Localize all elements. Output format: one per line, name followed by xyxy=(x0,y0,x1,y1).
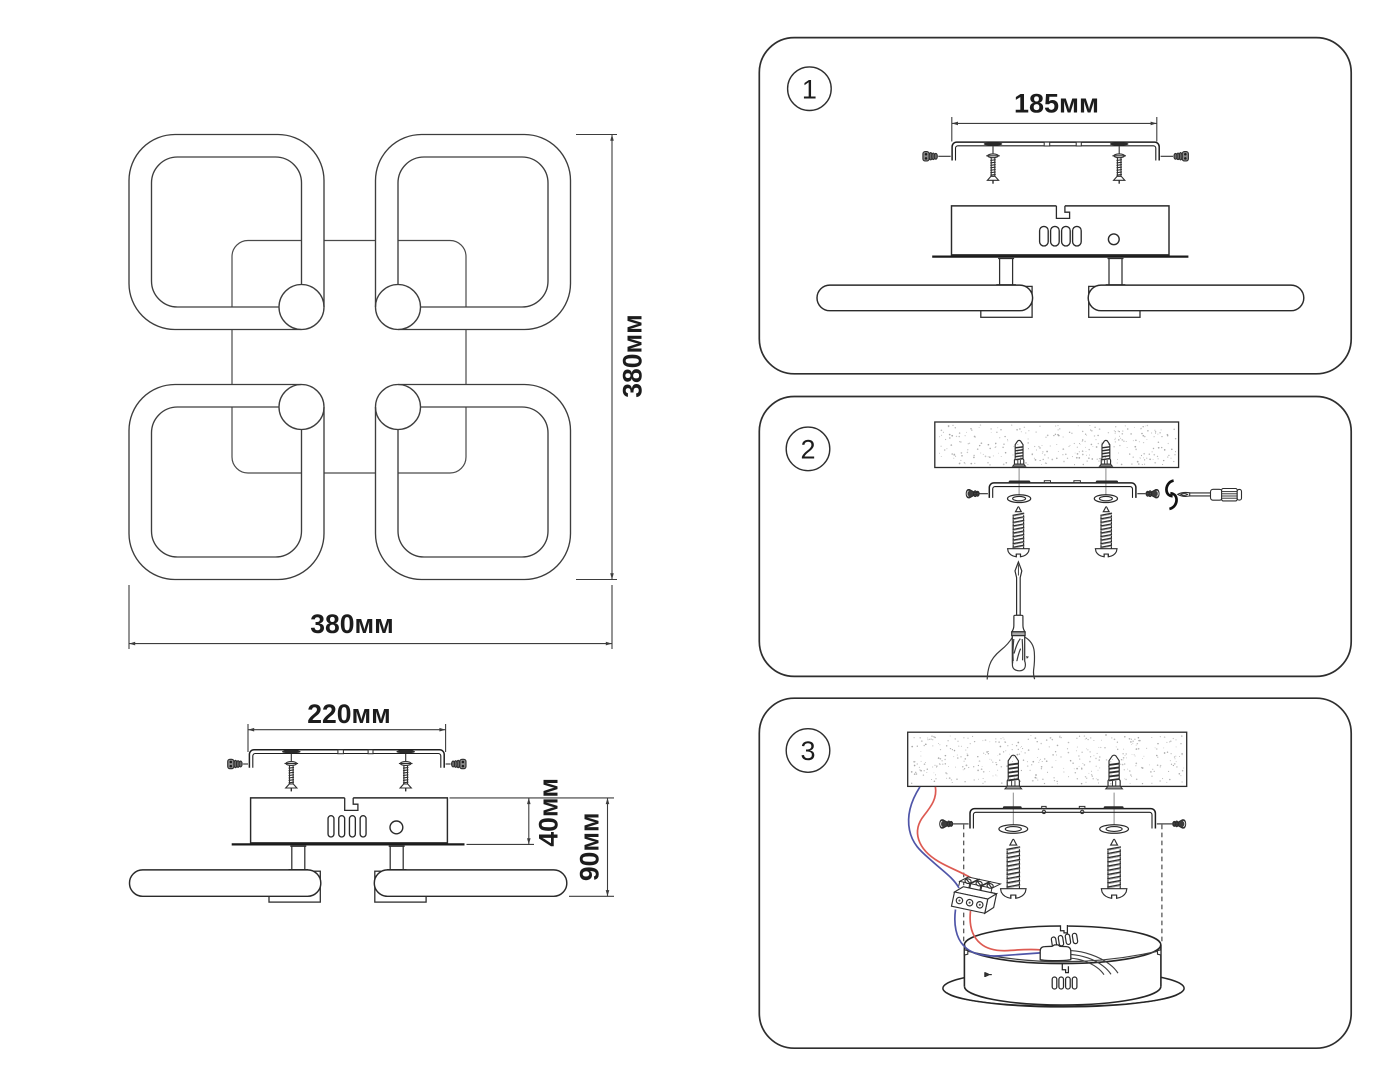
svg-text:40мм: 40мм xyxy=(534,778,564,847)
svg-text:3: 3 xyxy=(800,736,815,766)
svg-text:185мм: 185мм xyxy=(1014,89,1099,119)
svg-text:2: 2 xyxy=(800,435,815,465)
svg-text:220мм: 220мм xyxy=(307,699,390,729)
svg-text:380мм: 380мм xyxy=(310,609,393,639)
svg-text:380мм: 380мм xyxy=(618,314,648,397)
svg-text:1: 1 xyxy=(802,74,817,104)
svg-text:90мм: 90мм xyxy=(575,812,605,881)
